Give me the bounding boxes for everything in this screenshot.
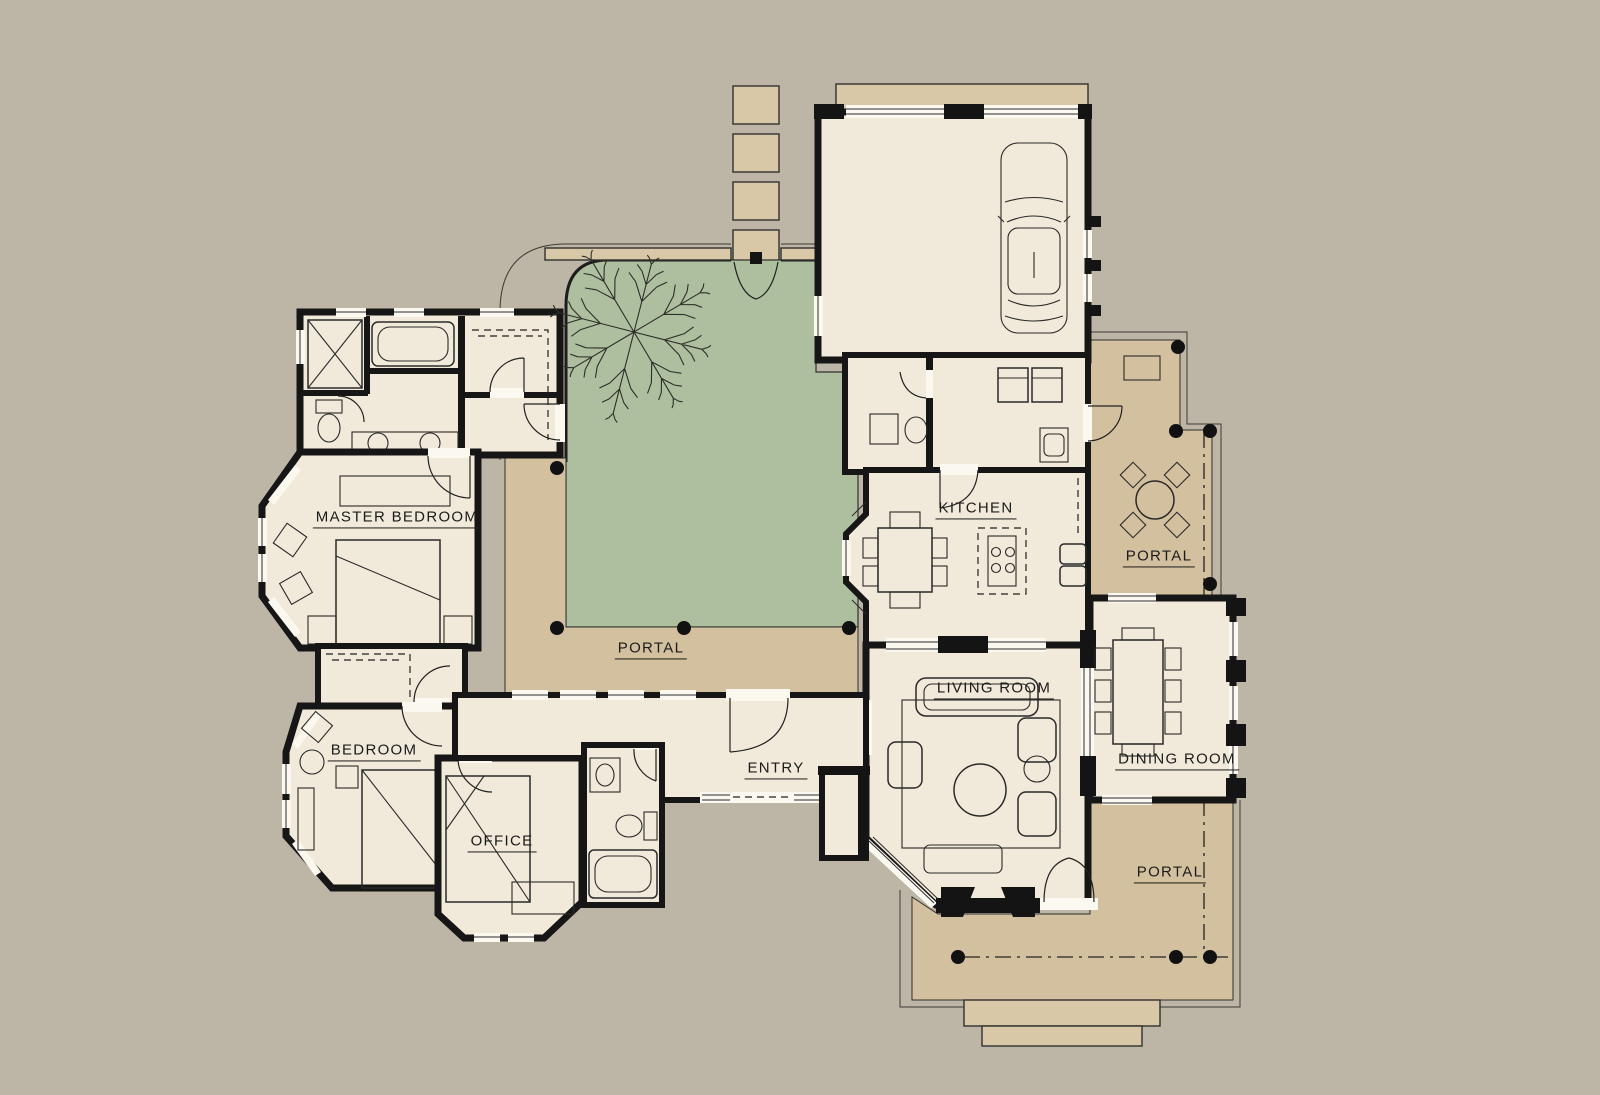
bathroom [584,740,662,905]
walkway-paver [733,182,779,220]
floor-plan-page: MASTER BEDROOMBEDROOMOFFICEENTRYKITCHENL… [0,0,1600,1095]
room-label-kitchen: KITCHEN [936,499,1017,519]
master-bath [296,308,565,455]
room-label-entry: ENTRY [744,759,807,779]
room-label-portal-south: PORTAL [1134,863,1206,883]
hall-closet [318,646,465,708]
living-room [859,636,1098,910]
walkway-paver [733,134,779,172]
room-label-office: OFFICE [468,832,537,852]
room-label-dining-room: DINING ROOM [1115,750,1239,770]
entry-stoop [818,766,870,858]
room-label-living-room: LIVING ROOM [934,679,1054,699]
room-label-portal-courtyard: PORTAL [615,639,687,659]
room-label-portal-east: PORTAL [1123,547,1195,567]
walkway-paver [733,86,779,124]
floor-plan-drawing [0,0,1600,1095]
dining-room [1080,593,1246,805]
mud-laundry [845,355,1122,472]
room-label-master-bedroom: MASTER BEDROOM [313,508,481,528]
master-bedroom [258,448,478,648]
kitchen [842,464,1088,645]
room-label-bedroom: BEDROOM [328,741,421,761]
